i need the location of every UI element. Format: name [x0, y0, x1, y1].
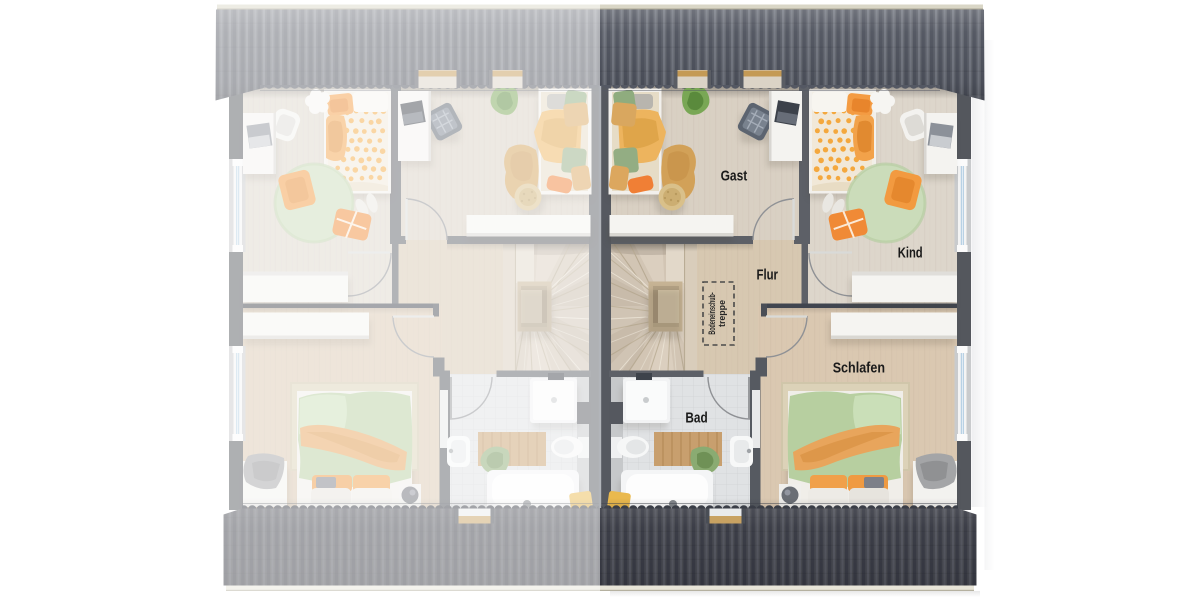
- svg-text:Schlafen: Schlafen: [833, 360, 885, 376]
- svg-text:Bad: Bad: [685, 410, 707, 426]
- svg-text:Kind: Kind: [898, 246, 923, 262]
- svg-text:Flur: Flur: [757, 268, 779, 284]
- svg-text:Gast: Gast: [721, 168, 748, 184]
